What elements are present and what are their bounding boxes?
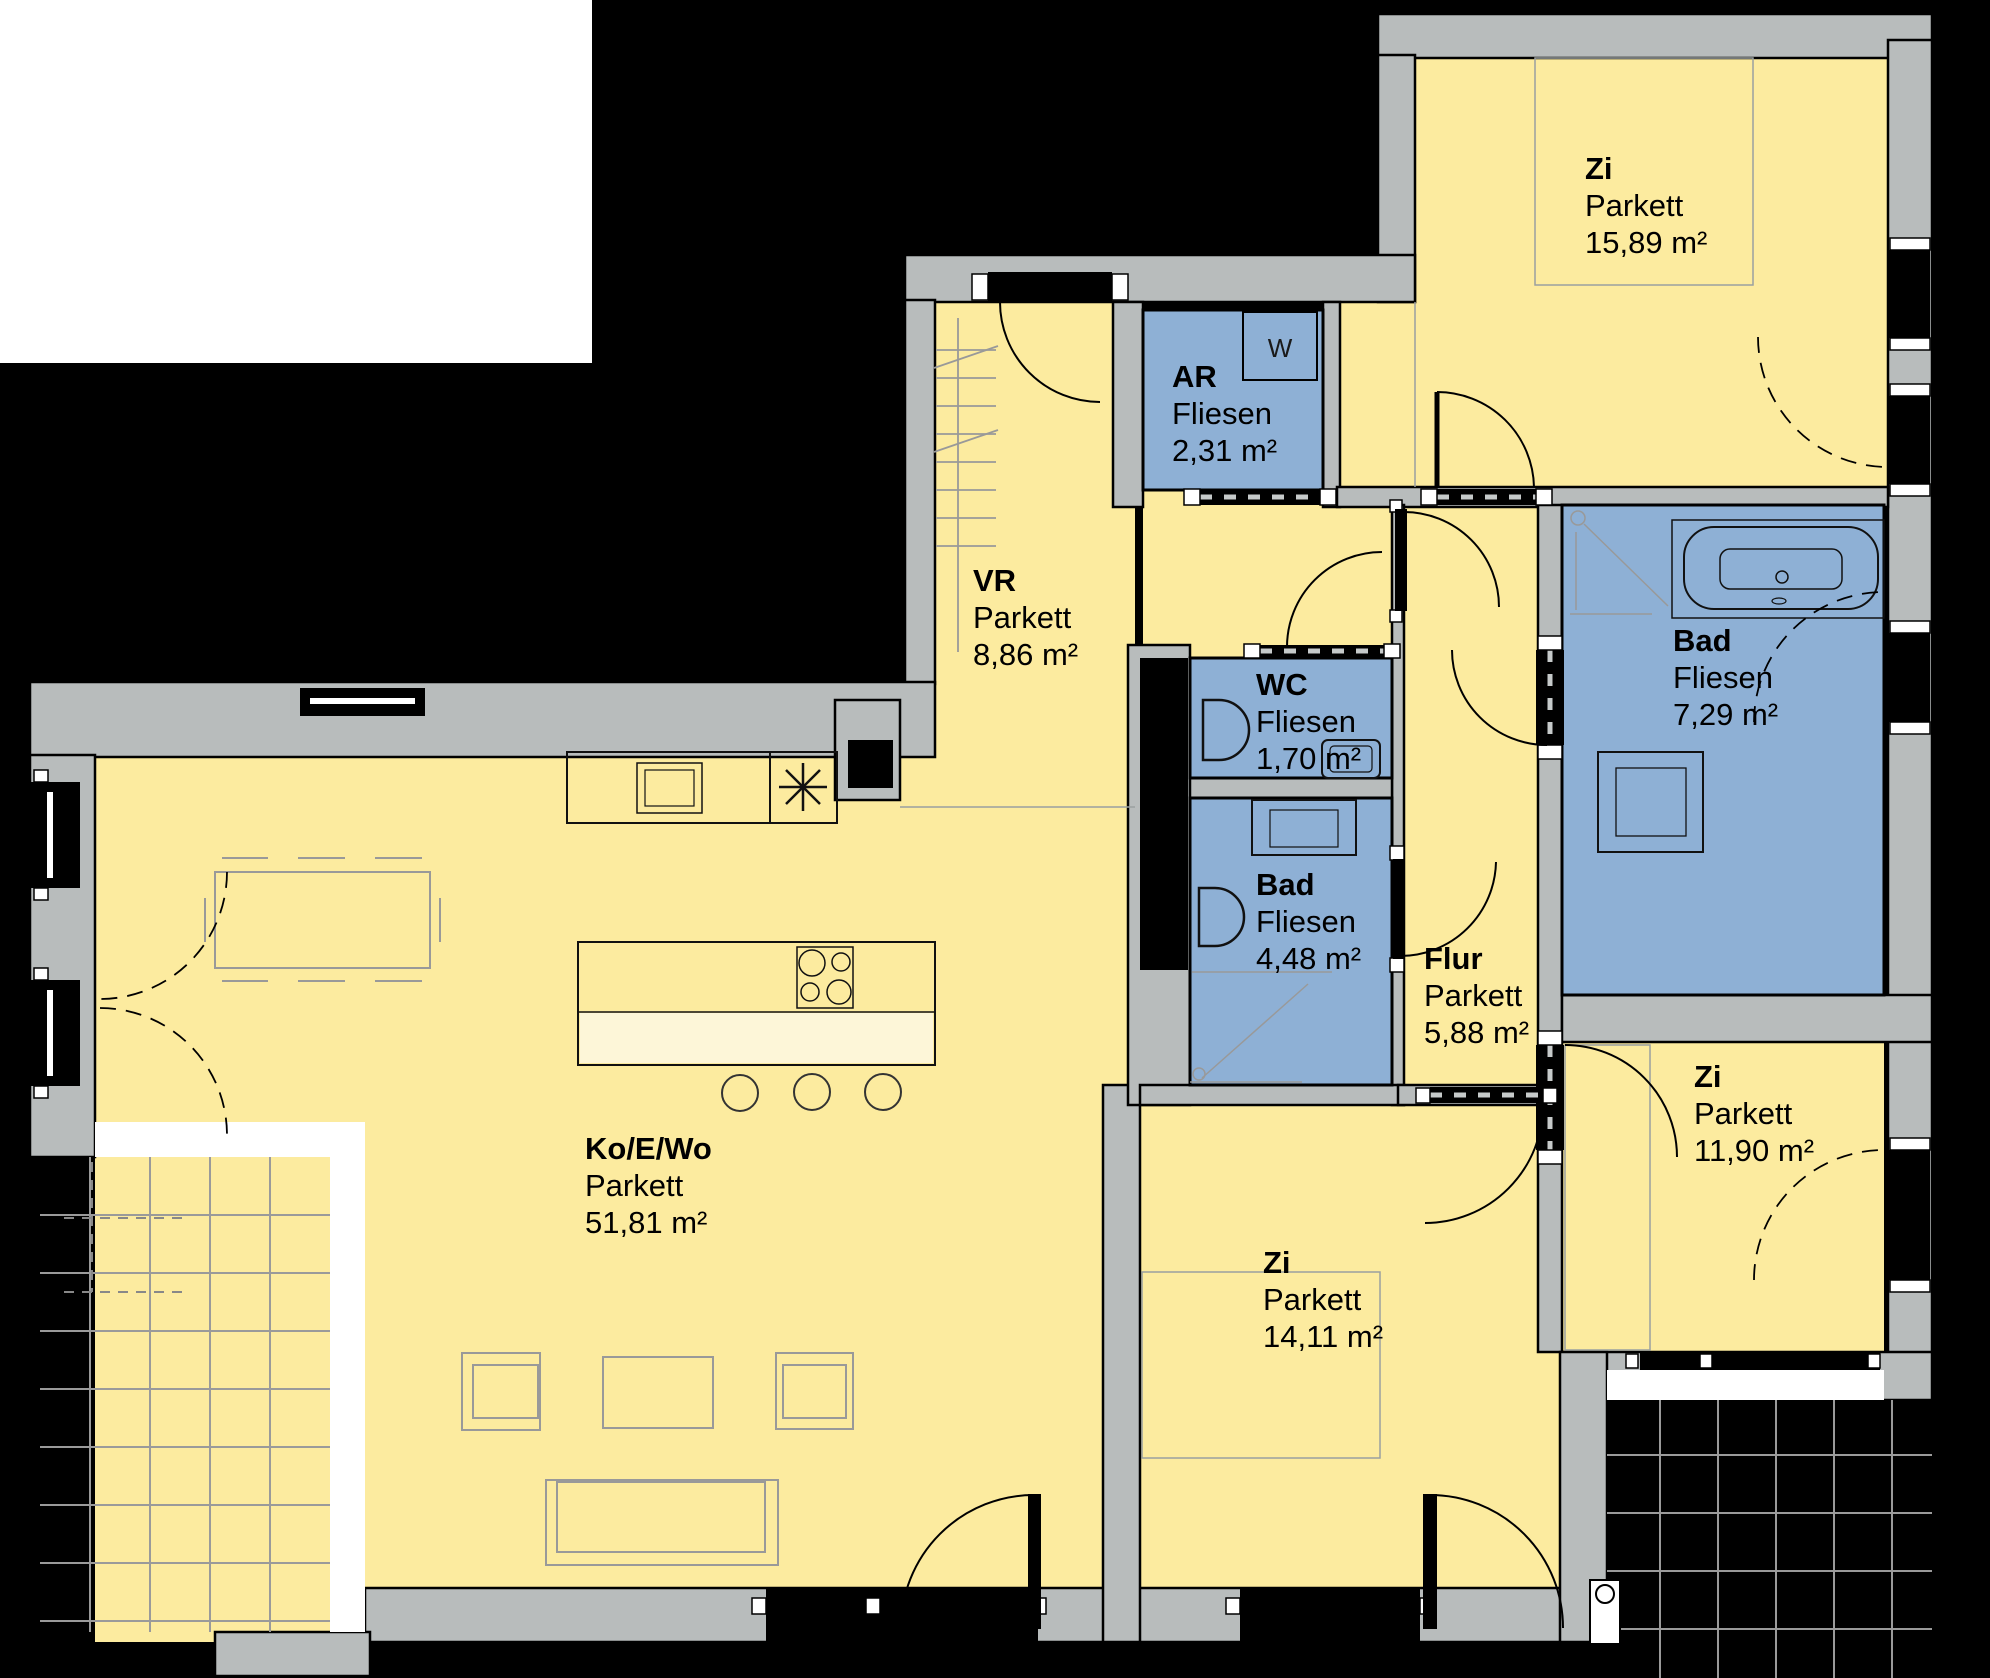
terrace-bl-walkway-right [330,1157,365,1632]
connection-point-icon [779,763,827,811]
room-label-kowo: Ko/E/Wo Parkett 51,81 m² [585,1130,712,1241]
island-counter-overhang [580,1013,933,1063]
window-right-1 [1888,250,1930,338]
floor-lobby [1143,490,1404,658]
window-right-3 [1888,633,1930,722]
window-left-1 [28,782,80,888]
room-label-bad-klein: Bad Fliesen 4,48 m² [1256,866,1361,977]
flur-door-leaf [1396,510,1406,610]
wall-pillar [848,740,893,788]
room-label-wc: WC Fliesen 1,70 m² [1256,666,1361,777]
terrace-br-walkway [1607,1370,1884,1400]
window-bottom-2 [1240,1588,1420,1642]
window-right-4 [1888,1150,1930,1280]
downspout-pipe-icon [1596,1585,1614,1603]
toilet-icon [1199,888,1244,946]
room-label-ar: AR Fliesen 2,31 m² [1172,358,1277,469]
window-left-2 [28,980,80,1086]
toilet-icon [1203,700,1249,760]
outside-area [0,0,592,363]
room-label-zi-mitte: Zi Parkett 14,11 m² [1263,1244,1383,1355]
window-right-2 [1888,396,1930,484]
room-label-bad-gross: Bad Fliesen 7,29 m² [1673,622,1778,733]
terrace-bl-walkway-top [95,1122,365,1157]
room-label-zi-rechts: Zi Parkett 11,90 m² [1694,1058,1814,1169]
floor-vr [935,300,1135,810]
floor-zi-mitte [1140,1105,1560,1642]
bar-stools [722,1074,901,1111]
room-bad-gross [1562,505,1884,995]
room-label-vr: VR Parkett 8,86 m² [973,562,1078,673]
terrace-door-leaf-2 [1424,1495,1436,1628]
window-zi-rechts-bottom [1640,1352,1880,1370]
installation-shaft [1140,658,1188,970]
room-label-zi-top: Zi Parkett 15,89 m² [1585,150,1707,261]
terrace-door-leaf-1 [1029,1495,1040,1628]
entry-door-opening [988,272,1112,302]
floor-plan: W Zi Parkett 15,89 m² AR F [0,0,1990,1678]
bad-klein-door-leaf [1394,860,1404,958]
room-label-flur: Flur Parkett 5,88 m² [1424,940,1529,1051]
floor-zi-top-b [1337,302,1888,507]
